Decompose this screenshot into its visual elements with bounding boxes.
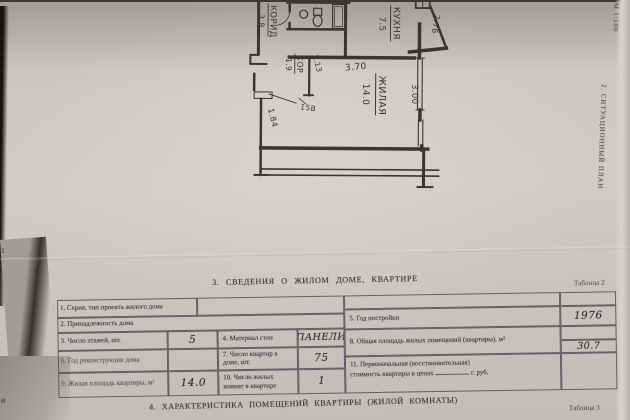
interior-wall [289, 57, 414, 58]
label-line1: 11. Первоначальная (восстановительная) [350, 360, 470, 369]
sink [300, 10, 308, 18]
room-area: 1.9 [284, 58, 293, 71]
handwritten-value: 1 [318, 375, 325, 388]
room-area: 7.5 [377, 17, 387, 32]
door-leaf [269, 94, 296, 103]
table-cell-value: 1 [298, 368, 345, 394]
balcony-railing [262, 169, 439, 176]
paper-crease [0, 246, 630, 261]
wall-step [250, 55, 266, 64]
table-cell-value: 5 [168, 330, 218, 349]
table-cell-label: 9. Жилая площадь квартиры, м² [58, 371, 168, 398]
handwritten-value: 1976 [574, 309, 603, 322]
table-cell-label: 10. Число жилых комнат в квартире [218, 369, 298, 395]
handwritten-value: 14.0 [181, 377, 207, 390]
table-cell-label: 7. Число квартир в доме, шт. [218, 347, 298, 370]
handwritten-value: 30.7 [577, 340, 600, 352]
handwritten-value: 75 [314, 351, 329, 364]
table-cell-label: 11. Первоначальная (восстановительная) с… [345, 353, 562, 393]
floor-plan-drawing: КОРИД 3.8 КОР 1.9 КУХНЯ 7.5 ЖИЛАЯ 14.0 2… [232, 0, 605, 217]
table-cell-value: ПАНЕЛИ [297, 328, 344, 347]
living-label-group: ЖИЛАЯ 14.0 [360, 74, 387, 116]
toilet-tank [314, 8, 322, 15]
table2-caption: Таблица 2 [574, 279, 605, 288]
table-cell-label: 8. Общая площадь жилых помещений (кварти… [344, 326, 560, 356]
section4-title: 4. ХАРАКТЕРИСТИКА ПОМЕЩЕНИЙ КВАРТИРЫ (ЖИ… [149, 395, 458, 411]
window-2 [418, 120, 423, 146]
balcony-left-post [261, 99, 262, 175]
kitchen-bottom-wall [409, 48, 446, 52]
closet-mark: 15В [300, 102, 317, 113]
table-cell-value [561, 352, 618, 390]
table-cell-value: 75 [298, 346, 345, 369]
table-cell-empty [560, 291, 616, 306]
dimension-276: 2.76 [430, 14, 442, 35]
bathtub-inner [335, 6, 343, 26]
table-cell-label: 1. Серия, тип проекта жилого дома [57, 298, 197, 318]
handwritten-value: 5 [189, 333, 196, 346]
door-arc [278, 11, 290, 25]
plan-scale-note: М 1:100 [612, 3, 620, 32]
table-cell-value: 1976 [560, 305, 616, 326]
table-cell-value [197, 295, 344, 315]
room-label: КОР [295, 55, 304, 73]
room-label: КУХНЯ [390, 7, 400, 40]
handwritten-value: ПАНЕЛИ [297, 332, 344, 344]
edge-text-fragment: И [1, 398, 6, 405]
table-cell-value: 30.7 [561, 339, 617, 353]
room-area: 3.8 [257, 14, 266, 28]
table3-caption: Таблица 3 [569, 404, 600, 413]
room-label: ЖИЛАЯ [376, 76, 387, 116]
toilet-bowl [313, 15, 322, 26]
table-cell-label: 4. Материал стен [217, 329, 297, 348]
building-info-table: 1. Серия, тип проекта жилого дома 2. При… [57, 291, 620, 400]
wall-block [254, 92, 272, 99]
room-area: 14.0 [360, 84, 370, 106]
blank-line [435, 368, 469, 376]
table-cell-label: 6. Год реконструкции дома [58, 349, 168, 373]
table-cell-value [168, 348, 218, 371]
table-cell-value: 14.0 [168, 370, 218, 396]
table-cell-empty [560, 325, 616, 340]
dimension-184: 1.84 [266, 107, 279, 128]
dimension-300: 3.00 [409, 84, 419, 105]
edge-text-fragment: 1 [1, 248, 5, 255]
living-bottom-wall [261, 148, 428, 149]
label-line2: стоимость квартиры в ценах [350, 371, 433, 379]
kitchen-label-group: КУХНЯ 7.5 [376, 6, 400, 41]
dimension-370: 3.70 [345, 62, 367, 74]
section3-title: 3. СВЕДЕНИЯ О ЖИЛОМ ДОМЕ, КВАРТИРЕ [212, 274, 418, 287]
room-label: КОРИД [267, 5, 277, 38]
label-suffix: г. руб. [471, 370, 489, 377]
table-cell-label: 3. Число этажей, шт. [58, 331, 168, 351]
scanned-document-page: 1 1 5 И М 1:100 2. СИТУАЦИОННЫЙ ПЛАН [0, 0, 630, 420]
